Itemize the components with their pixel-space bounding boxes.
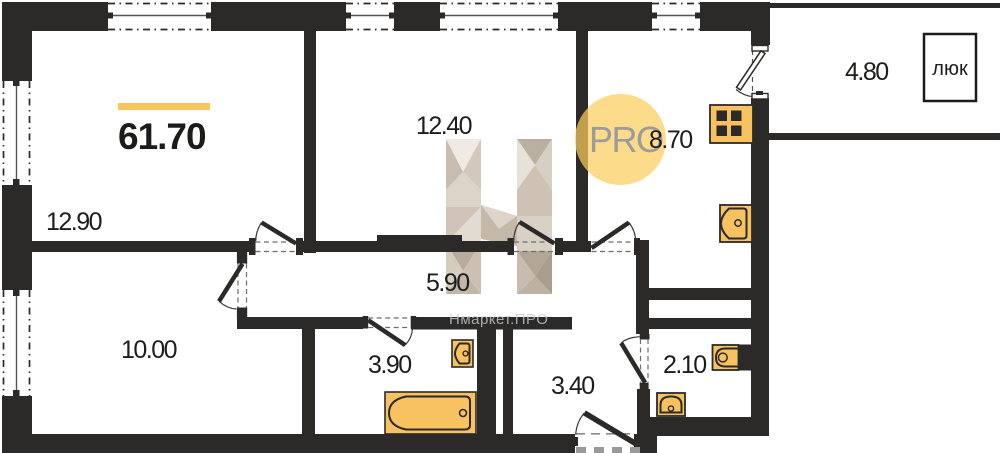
svg-text:4.80: 4.80 xyxy=(845,58,888,86)
svg-text:2.10: 2.10 xyxy=(663,351,706,379)
svg-text:61.70: 61.70 xyxy=(118,116,206,157)
svg-text:12.90: 12.90 xyxy=(46,208,102,236)
svg-text:10.00: 10.00 xyxy=(121,336,177,364)
svg-text:5.90: 5.90 xyxy=(426,269,469,297)
svg-text:8.70: 8.70 xyxy=(649,126,692,154)
svg-text:3.40: 3.40 xyxy=(551,372,594,400)
svg-text:12.40: 12.40 xyxy=(416,112,472,140)
svg-text:Нмаркет.ПРО: Нмаркет.ПРО xyxy=(449,311,548,328)
svg-text:люк: люк xyxy=(932,58,968,80)
svg-text:3.90: 3.90 xyxy=(368,351,411,379)
